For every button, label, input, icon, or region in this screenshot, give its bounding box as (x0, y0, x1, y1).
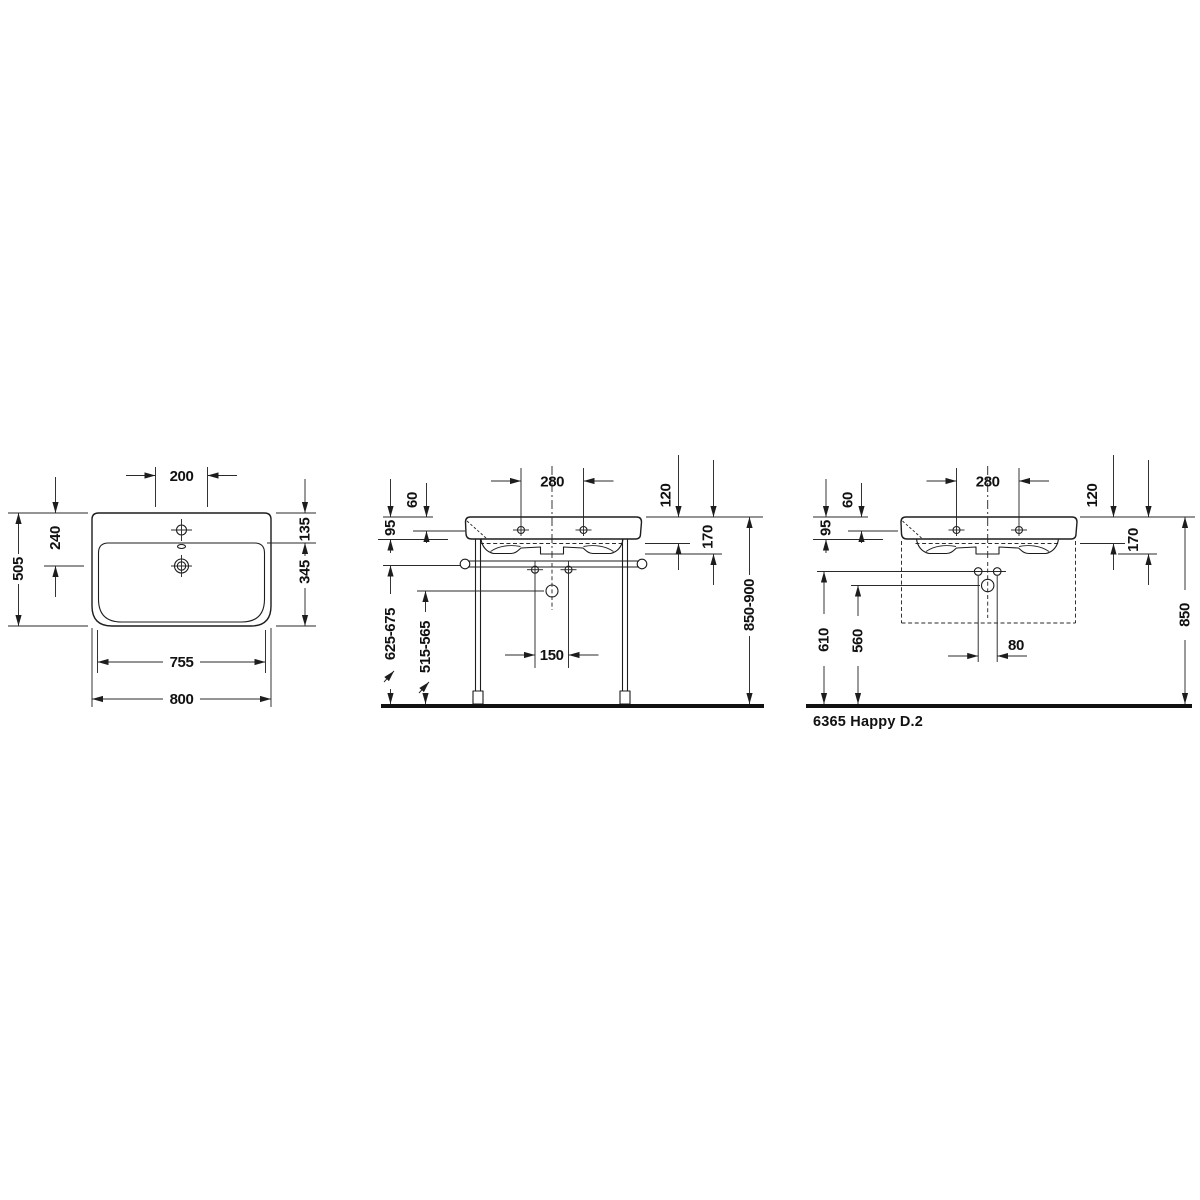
plan-overflow-slot (178, 545, 186, 549)
dim-label-60-wall: 60 (840, 492, 857, 508)
dim-label-120-console: 120 (658, 484, 675, 508)
wall-basin-hidden-edge (903, 521, 922, 538)
dim-label-150: 150 (540, 647, 564, 664)
dim-label-800: 800 (170, 691, 194, 708)
console-rail-knob-left (460, 559, 470, 569)
dim-label-280-wall: 280 (976, 474, 1000, 491)
plan-dim-right-chain: 135 345 (267, 479, 316, 626)
wall-dim-fixing-height: 610 (816, 572, 833, 705)
dim-label-280-console: 280 (540, 474, 564, 491)
dim-label-515-565: 515-565 (417, 621, 434, 673)
dim-label-850-900: 850-900 (741, 579, 758, 631)
console-drain-outlet (417, 585, 558, 597)
adjustable-arrow-icon (384, 671, 394, 682)
dim-label-610: 610 (816, 628, 833, 652)
technical-drawing-canvas: 200 505 240 135 345 (0, 0, 1200, 1200)
console-dim-rim-offsets: 60 95 (378, 479, 465, 553)
console-leg-foot-left (473, 691, 483, 704)
plan-basin-bowl-outline (99, 543, 265, 622)
plan-dim-faucet-width: 200 (126, 467, 237, 507)
technical-drawing-page: 200 505 240 135 345 (0, 0, 1200, 1200)
console-basin-outline (466, 517, 642, 539)
console-rail-knob-right (637, 559, 647, 569)
dim-label-850: 850 (1177, 603, 1194, 627)
dim-label-755: 755 (170, 654, 194, 671)
wall-dim-drain-height: 560 (850, 586, 867, 705)
dim-label-505: 505 (10, 557, 27, 581)
plan-view: 200 505 240 135 345 (8, 467, 316, 708)
console-basin-hidden-edge (467, 521, 486, 538)
wall-underside-detail-left (926, 546, 956, 552)
wall-drain-outlet (851, 579, 994, 591)
dim-label-625-675: 625-675 (382, 608, 399, 660)
dim-label-95-wall: 95 (818, 520, 835, 536)
console-dim-rim-height: 850-900 (741, 517, 758, 704)
dim-label-80: 80 (1008, 637, 1024, 654)
wall-dim-underside-offsets: 120 170 (1080, 455, 1195, 585)
dim-label-560: 560 (850, 629, 867, 653)
console-underside-detail-right (584, 546, 614, 552)
console-underside-detail-left (491, 546, 521, 552)
product-model-label: 6365 Happy D.2 (813, 714, 923, 730)
dim-label-240: 240 (47, 526, 64, 550)
adjustable-arrow-icon (419, 682, 429, 693)
wall-underside-detail-right (1019, 546, 1049, 552)
plan-dim-top-to-drain: 240 (44, 477, 84, 597)
console-stand-legs (473, 539, 630, 704)
wall-dim-rim-offsets: 60 95 (813, 479, 898, 553)
wall-basin-outline (901, 517, 1077, 539)
dim-label-60-console: 60 (404, 492, 421, 508)
dim-label-120-wall: 120 (1084, 484, 1101, 508)
dim-label-135: 135 (297, 518, 314, 542)
plan-drain-hole (171, 555, 192, 577)
console-leg-foot-right (620, 691, 630, 704)
dim-label-345: 345 (297, 560, 314, 584)
console-dim-drain-height: 515-565 (417, 591, 434, 704)
wall-dim-rim-height: 850 (1177, 517, 1194, 704)
console-towel-rail (460, 559, 647, 569)
dim-label-95-console: 95 (382, 520, 399, 536)
plan-faucet-hole (171, 519, 192, 541)
plan-dim-bowl-width: 755 (98, 630, 266, 673)
dim-label-170-wall: 170 (1125, 528, 1142, 552)
console-view: 280 60 95 120 170 (378, 455, 764, 706)
dim-label-170-console: 170 (700, 525, 717, 549)
wall-view: 280 60 95 120 170 (806, 455, 1195, 730)
console-dim-underside-offsets: 120 170 (645, 455, 763, 585)
dim-label-200: 200 (170, 468, 194, 485)
